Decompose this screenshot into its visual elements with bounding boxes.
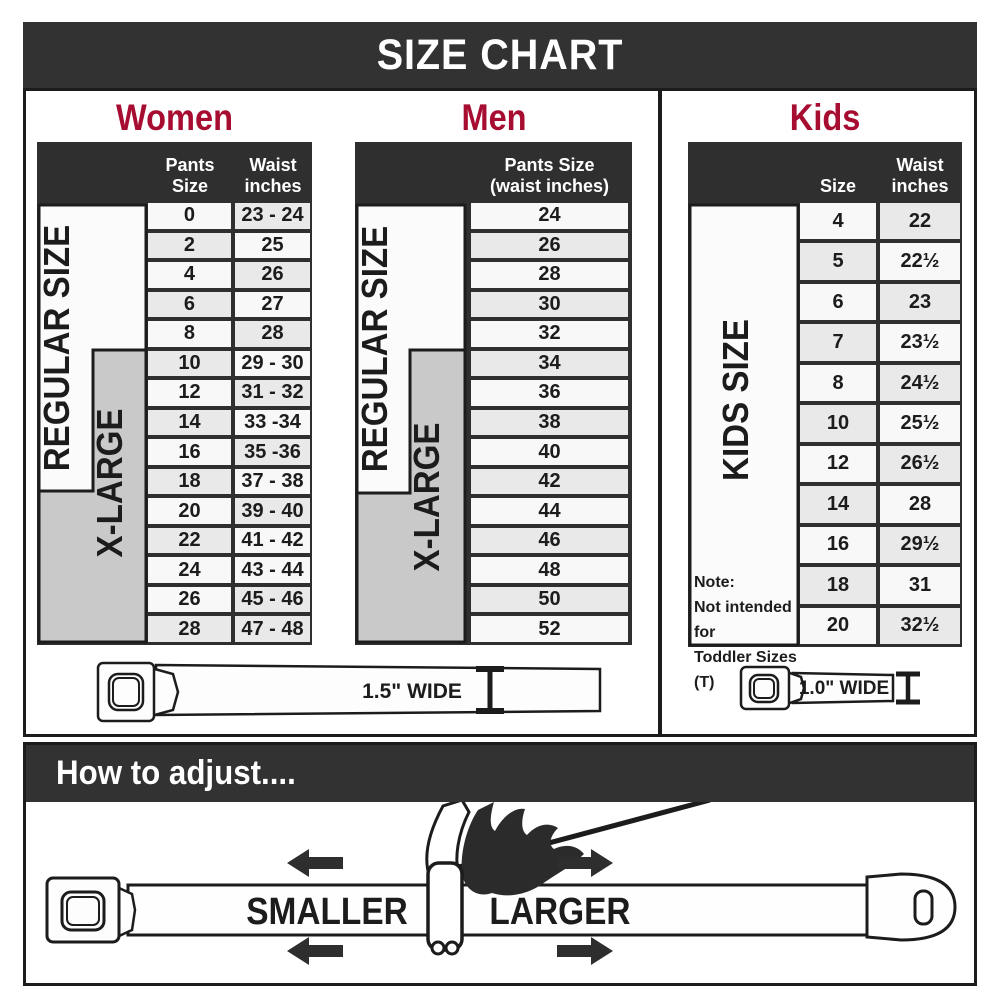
- women-waist-cell: 23 - 24: [235, 203, 310, 229]
- men-pants-size-cell: 38: [471, 410, 628, 436]
- kids-waist-cell: 22½: [880, 243, 960, 279]
- women-waist-cell: 27: [235, 292, 310, 318]
- adjust-belt-drawing: SMALLER LARGER: [26, 802, 974, 983]
- women-pants-size-cell: 16: [148, 439, 231, 465]
- seatbelt-buckle: [47, 878, 119, 942]
- men-pants-size-cell: 34: [471, 351, 628, 377]
- women-waist-cell: 45 - 46: [235, 587, 310, 613]
- adjust-heading: How to adjust....: [56, 754, 296, 793]
- men-pants-size-cell: 42: [471, 469, 628, 495]
- arrow-left-icon: [287, 849, 343, 877]
- kids-size-cell: 14: [800, 486, 876, 522]
- women-heading: Women: [37, 97, 312, 139]
- adjust-section: How to adjust....: [23, 742, 977, 986]
- women-pants-size-cell: 8: [148, 321, 231, 347]
- regular-size-label: REGULAR SIZE: [38, 225, 78, 471]
- women-table-body: 0 23 - 24 2 25 4 26 6 27 8 28 10 29 - 30: [148, 203, 310, 642]
- men-pants-size-cell: 52: [471, 616, 628, 642]
- kids-waist-cell: 22: [880, 203, 960, 239]
- regular-size-label: REGULAR SIZE: [356, 226, 396, 472]
- belt-slider: [428, 863, 462, 950]
- x-large-label: X-LARGE: [91, 409, 131, 558]
- kids-size-table: Size Waist inches KIDS SIZE Note: Not in…: [688, 142, 962, 647]
- women-pants-size-cell: 2: [148, 233, 231, 259]
- x-large-label: X-LARGE: [408, 423, 448, 572]
- kids-waist-cell: 24½: [880, 365, 960, 401]
- kids-waist-cell: 25½: [880, 405, 960, 441]
- women-pants-size-cell: 26: [148, 587, 231, 613]
- kids-size-cell: 18: [800, 567, 876, 603]
- women-pants-size-cell: 6: [148, 292, 231, 318]
- kids-size-cell: 6: [800, 284, 876, 320]
- men-table-header: Pants Size (waist inches): [355, 142, 632, 203]
- tables-section: Women Men Kids Pants Size Waist inches R…: [23, 88, 977, 737]
- kids-waist-cell: 23½: [880, 324, 960, 360]
- women-size-range-labels: REGULAR SIZE X-LARGE: [37, 203, 148, 645]
- women-waist-cell: 39 - 40: [235, 498, 310, 524]
- men-table-body: 24 26 28 30 32 34 36 38 40 42: [471, 203, 628, 642]
- kids-waist-cell: 32½: [880, 608, 960, 644]
- men-pants-size-cell: 50: [471, 587, 628, 613]
- adult-belt-width-label: 1.5" WIDE: [362, 680, 462, 703]
- men-heading: Men: [355, 97, 632, 139]
- women-pants-size-cell: 12: [148, 380, 231, 406]
- women-pants-size-cell: 24: [148, 557, 231, 583]
- adult-belt-illustration: 1.5" WIDE: [93, 655, 605, 730]
- men-pants-size-cell: 46: [471, 528, 628, 554]
- women-pants-size-cell: 18: [148, 469, 231, 495]
- kids-size-cell: 4: [800, 203, 876, 239]
- kids-table-body: 4 22 5 22½ 6 23 7 23½ 8 24½ 10 25½: [800, 203, 960, 644]
- women-waist-cell: 25: [235, 233, 310, 259]
- adjust-heading-bar: How to adjust....: [26, 745, 974, 802]
- women-waist-cell: 37 - 38: [235, 469, 310, 495]
- kids-size-cell: 7: [800, 324, 876, 360]
- women-waist-cell: 41 - 42: [235, 528, 310, 554]
- women-waist-cell: 29 - 30: [235, 351, 310, 377]
- women-pants-size-cell: 20: [148, 498, 231, 524]
- title-banner: SIZE CHART: [23, 22, 977, 88]
- arrow-right-icon: [557, 937, 613, 965]
- kids-size-cell: 5: [800, 243, 876, 279]
- belt-tip-slot: [915, 891, 932, 924]
- smaller-label: SMALLER: [246, 890, 408, 932]
- women-waist-header: Waist inches: [236, 155, 310, 197]
- men-pants-size-header: Pants Size (waist inches): [471, 155, 628, 197]
- buckle-latch: [119, 888, 135, 936]
- men-pants-size-cell: 48: [471, 557, 628, 583]
- women-pants-size-cell: 10: [148, 351, 231, 377]
- kids-waist-cell: 23: [880, 284, 960, 320]
- kids-belt-width-label: 1.0" WIDE: [799, 678, 889, 699]
- men-pants-size-cell: 36: [471, 380, 628, 406]
- women-size-table: Pants Size Waist inches REGULAR SIZE X-L…: [37, 142, 312, 645]
- women-waist-cell: 28: [235, 321, 310, 347]
- section-divider: [658, 88, 662, 737]
- women-pants-size-cell: 4: [148, 262, 231, 288]
- kids-waist-cell: 29½: [880, 527, 960, 563]
- kids-waist-cell: 26½: [880, 446, 960, 482]
- women-waist-cell: 47 - 48: [235, 616, 310, 642]
- seatbelt-buckle: [98, 663, 154, 721]
- men-pants-size-cell: 30: [471, 292, 628, 318]
- kids-size-cell: 10: [800, 405, 876, 441]
- belt-tip: [867, 874, 955, 940]
- width-measure-icon: [896, 674, 920, 702]
- men-pants-size-cell: 44: [471, 498, 628, 524]
- kids-size-header: Size: [800, 176, 876, 197]
- men-size-table: Pants Size (waist inches) REGULAR SIZE X…: [355, 142, 632, 645]
- women-pants-size-cell: 28: [148, 616, 231, 642]
- men-pants-size-cell: 24: [471, 203, 628, 229]
- women-pants-size-cell: 14: [148, 410, 231, 436]
- kids-belt-illustration: 1.0" WIDE: [733, 658, 933, 718]
- women-waist-cell: 26: [235, 262, 310, 288]
- size-chart-page: SIZE CHART Women Men Kids Pants Size Wai…: [0, 0, 1000, 1000]
- kids-size-cell: 12: [800, 446, 876, 482]
- women-waist-cell: 33 -34: [235, 410, 310, 436]
- kids-waist-cell: 28: [880, 486, 960, 522]
- men-pants-size-cell: 28: [471, 262, 628, 288]
- women-waist-cell: 35 -36: [235, 439, 310, 465]
- women-waist-cell: 43 - 44: [235, 557, 310, 583]
- kids-size-cell: 16: [800, 527, 876, 563]
- women-pants-size-cell: 0: [148, 203, 231, 229]
- women-table-header: Pants Size Waist inches: [37, 142, 312, 203]
- men-pants-size-cell: 40: [471, 439, 628, 465]
- kids-waist-cell: 31: [880, 567, 960, 603]
- men-pants-size-cell: 26: [471, 233, 628, 259]
- kids-size-label: KIDS SIZE: [717, 319, 757, 481]
- adjust-illustration: SMALLER LARGER: [26, 802, 974, 983]
- kids-size-cell: 8: [800, 365, 876, 401]
- kids-size-cell: 20: [800, 608, 876, 644]
- larger-label: LARGER: [489, 890, 630, 932]
- men-size-range-labels: REGULAR SIZE X-LARGE: [355, 203, 467, 645]
- page-title: SIZE CHART: [377, 31, 624, 80]
- women-waist-cell: 31 - 32: [235, 380, 310, 406]
- women-pants-size-header: Pants Size: [148, 155, 232, 197]
- women-pants-size-cell: 22: [148, 528, 231, 554]
- kids-heading: Kids: [688, 97, 962, 139]
- kids-waist-header: Waist inches: [880, 155, 960, 197]
- kids-table-header: Size Waist inches: [688, 142, 962, 203]
- men-pants-size-cell: 32: [471, 321, 628, 347]
- arrow-left-icon: [287, 937, 343, 965]
